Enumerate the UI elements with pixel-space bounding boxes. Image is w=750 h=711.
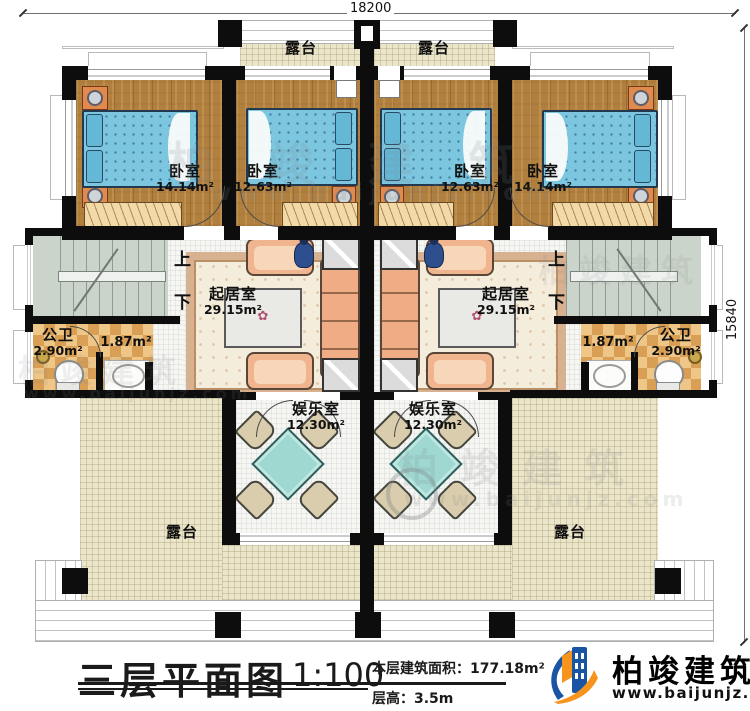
column xyxy=(493,20,517,47)
wall xyxy=(566,228,709,236)
stair-up-label: 上 xyxy=(174,245,191,270)
title-underline xyxy=(78,682,506,685)
room-label-living-right: 起居室29.15m² xyxy=(477,286,535,316)
window-sill xyxy=(88,52,207,67)
window xyxy=(240,533,350,545)
floor-height-text: 层高：3.5m xyxy=(372,688,453,708)
door-opening xyxy=(240,226,278,240)
wall xyxy=(554,316,709,324)
title-underline xyxy=(78,688,368,690)
stair-handrail xyxy=(58,271,166,282)
person-figure xyxy=(424,242,444,268)
room-label-vanity-left: 1.87m² xyxy=(100,336,151,350)
pillow xyxy=(634,114,651,147)
floor-plan-drawing: 18200 15840 xyxy=(0,0,750,711)
wall xyxy=(498,66,512,240)
pillow xyxy=(86,114,103,147)
pillow xyxy=(634,150,651,183)
bath-left-lobby-floor xyxy=(153,324,183,390)
door-opening xyxy=(378,66,400,80)
door-leaf xyxy=(336,80,357,98)
wardrobe xyxy=(282,202,358,228)
room-label-entertainment-left: 娱乐室12.30m² xyxy=(287,401,345,431)
room-label-terrace-top-right: 露台 xyxy=(418,40,450,57)
person-figure xyxy=(294,242,314,268)
window xyxy=(384,533,494,545)
wall xyxy=(222,66,236,240)
wall xyxy=(222,392,236,545)
window xyxy=(25,332,33,380)
door-opening xyxy=(394,392,478,400)
wall xyxy=(25,316,180,324)
room-label-living-left: 起居室29.15m² xyxy=(204,286,262,316)
nightstand xyxy=(628,86,654,110)
door-opening xyxy=(456,226,494,240)
door-leaf xyxy=(379,80,400,98)
floor-area-text: 本层建筑面积：177.18m² xyxy=(372,658,545,678)
window xyxy=(25,245,33,305)
window xyxy=(88,66,205,80)
column xyxy=(62,568,88,594)
brand-website: www.baijunjz.com xyxy=(612,684,750,702)
eave-line xyxy=(512,46,674,49)
column xyxy=(489,612,515,638)
armchair xyxy=(426,352,494,390)
washbasin xyxy=(593,364,626,388)
room-label-terrace-bottom-left: 露台 xyxy=(166,524,198,541)
wall xyxy=(360,22,374,625)
room-label-vanity-right: 1.87m² xyxy=(582,336,633,350)
column xyxy=(655,568,681,594)
door-opening xyxy=(510,226,548,240)
wall xyxy=(510,390,709,398)
window xyxy=(658,100,672,196)
drawing-title: 三层平面图 xyxy=(78,650,288,705)
washbasin xyxy=(112,364,145,388)
wall xyxy=(25,228,168,236)
side-table xyxy=(322,358,360,392)
room-label-bath-right: 公卫2.90m² xyxy=(651,327,700,357)
dimension-line-right xyxy=(744,28,745,643)
pillow xyxy=(335,148,352,181)
side-table xyxy=(322,236,360,270)
terrace-bottom-left-floor xyxy=(80,398,222,608)
column xyxy=(215,612,241,638)
room-label-bedroom-mid-left: 卧室12.63m² xyxy=(234,163,292,193)
window-sill xyxy=(672,95,686,200)
stair-up-label: 上 xyxy=(548,245,565,270)
window xyxy=(709,332,717,380)
door-opening xyxy=(334,66,356,80)
wardrobe xyxy=(378,202,454,228)
room-label-terrace-bottom-right: 露台 xyxy=(554,524,586,541)
wall xyxy=(581,362,589,390)
terrace-bottom-right-floor xyxy=(512,398,658,608)
pillow xyxy=(384,148,401,181)
room-label-terrace-top-left: 露台 xyxy=(285,40,317,57)
side-table xyxy=(380,236,418,270)
wall xyxy=(631,352,638,390)
wall xyxy=(96,352,103,390)
nightstand xyxy=(82,86,108,110)
dimension-height-label: 15840 xyxy=(725,299,740,340)
stair-handrail xyxy=(570,271,678,282)
wall xyxy=(498,392,512,545)
wall xyxy=(145,362,153,390)
pillow xyxy=(335,112,352,145)
door-opening xyxy=(256,392,340,400)
window xyxy=(245,66,330,80)
room-label-bedroom-far-left: 卧室14.14m² xyxy=(156,163,214,193)
side-table xyxy=(380,358,418,392)
window xyxy=(709,245,717,305)
dimension-width-label: 18200 xyxy=(347,1,394,16)
dimension-tick xyxy=(731,9,739,17)
eave-line xyxy=(62,46,224,49)
window xyxy=(530,66,648,80)
room-label-bath-left: 公卫2.90m² xyxy=(33,327,82,357)
room-label-bedroom-far-right: 卧室14.14m² xyxy=(514,163,572,193)
wardrobe xyxy=(552,202,654,228)
room-label-entertainment-right: 娱乐室12.30m² xyxy=(404,401,462,431)
column xyxy=(355,612,381,638)
stair-down-label: 下 xyxy=(174,288,191,313)
wall xyxy=(25,390,240,398)
column xyxy=(218,20,242,47)
brand-logo-icon xyxy=(544,640,606,706)
wardrobe xyxy=(84,202,182,228)
window xyxy=(404,66,490,80)
room-label-bedroom-mid-right: 卧室12.63m² xyxy=(441,163,499,193)
door-opening xyxy=(184,226,224,240)
window xyxy=(62,100,76,196)
pillow xyxy=(86,150,103,183)
window-sill xyxy=(530,52,650,67)
stair-down-label: 下 xyxy=(548,288,565,313)
column-notch xyxy=(361,26,373,41)
dimension-tick xyxy=(740,638,748,646)
armchair xyxy=(246,352,314,390)
pillow xyxy=(384,112,401,145)
